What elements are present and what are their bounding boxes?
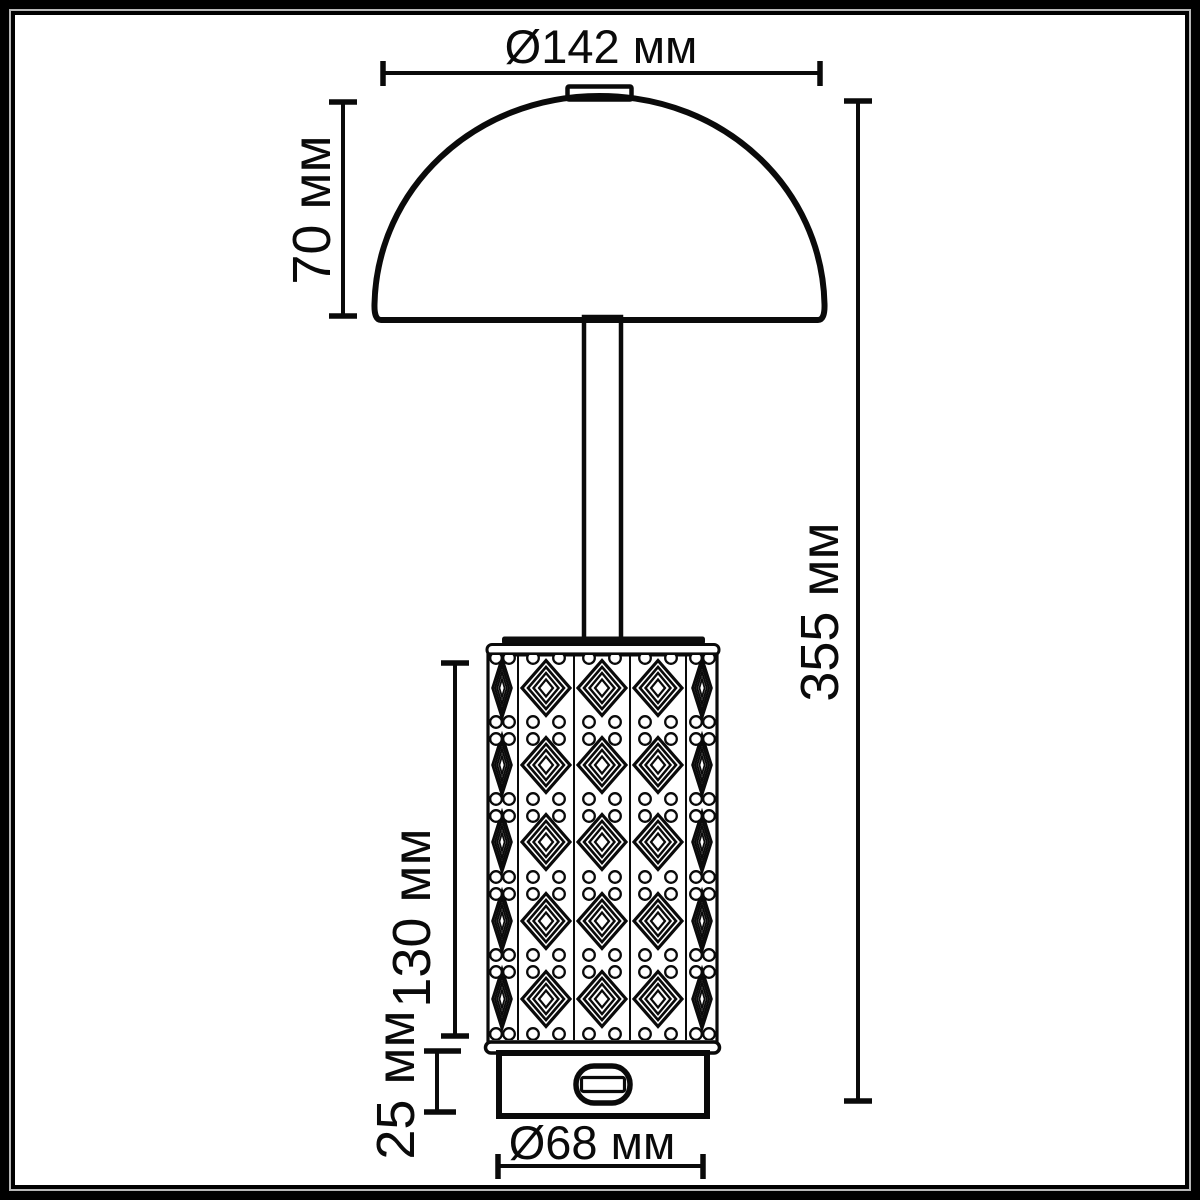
- dim-base-diameter: Ø68 мм: [498, 1116, 703, 1179]
- base: [499, 1053, 707, 1116]
- dim-label-base-height: 25 мм: [366, 1010, 426, 1159]
- dim-label-total-height: 355 мм: [790, 522, 850, 701]
- dim-shade-height: 70 мм: [282, 102, 357, 316]
- dim-label-shade-diameter: Ø142 мм: [505, 20, 698, 73]
- dim-label-body-height: 130 мм: [382, 828, 442, 1007]
- dim-base-height: 25 мм: [366, 1010, 461, 1159]
- dim-label-shade-height: 70 мм: [282, 135, 342, 284]
- power-button-outline: [576, 1066, 630, 1103]
- dim-shade-diameter: Ø142 мм: [383, 20, 820, 86]
- drawing-page: Ø142 мм 70 мм 355 мм 130 мм: [0, 0, 1200, 1200]
- crystal-pattern: [490, 652, 715, 1040]
- power-button-window: [582, 1078, 625, 1092]
- lamp-dimension-drawing: Ø142 мм 70 мм 355 мм 130 мм: [0, 0, 1200, 1200]
- stem: [584, 317, 621, 642]
- dim-total-height: 355 мм: [790, 101, 872, 1101]
- dim-body-height: 130 мм: [382, 663, 469, 1036]
- dim-label-base-diameter: Ø68 мм: [509, 1116, 676, 1169]
- power-button: [576, 1066, 630, 1103]
- dome-shade: [374, 96, 824, 320]
